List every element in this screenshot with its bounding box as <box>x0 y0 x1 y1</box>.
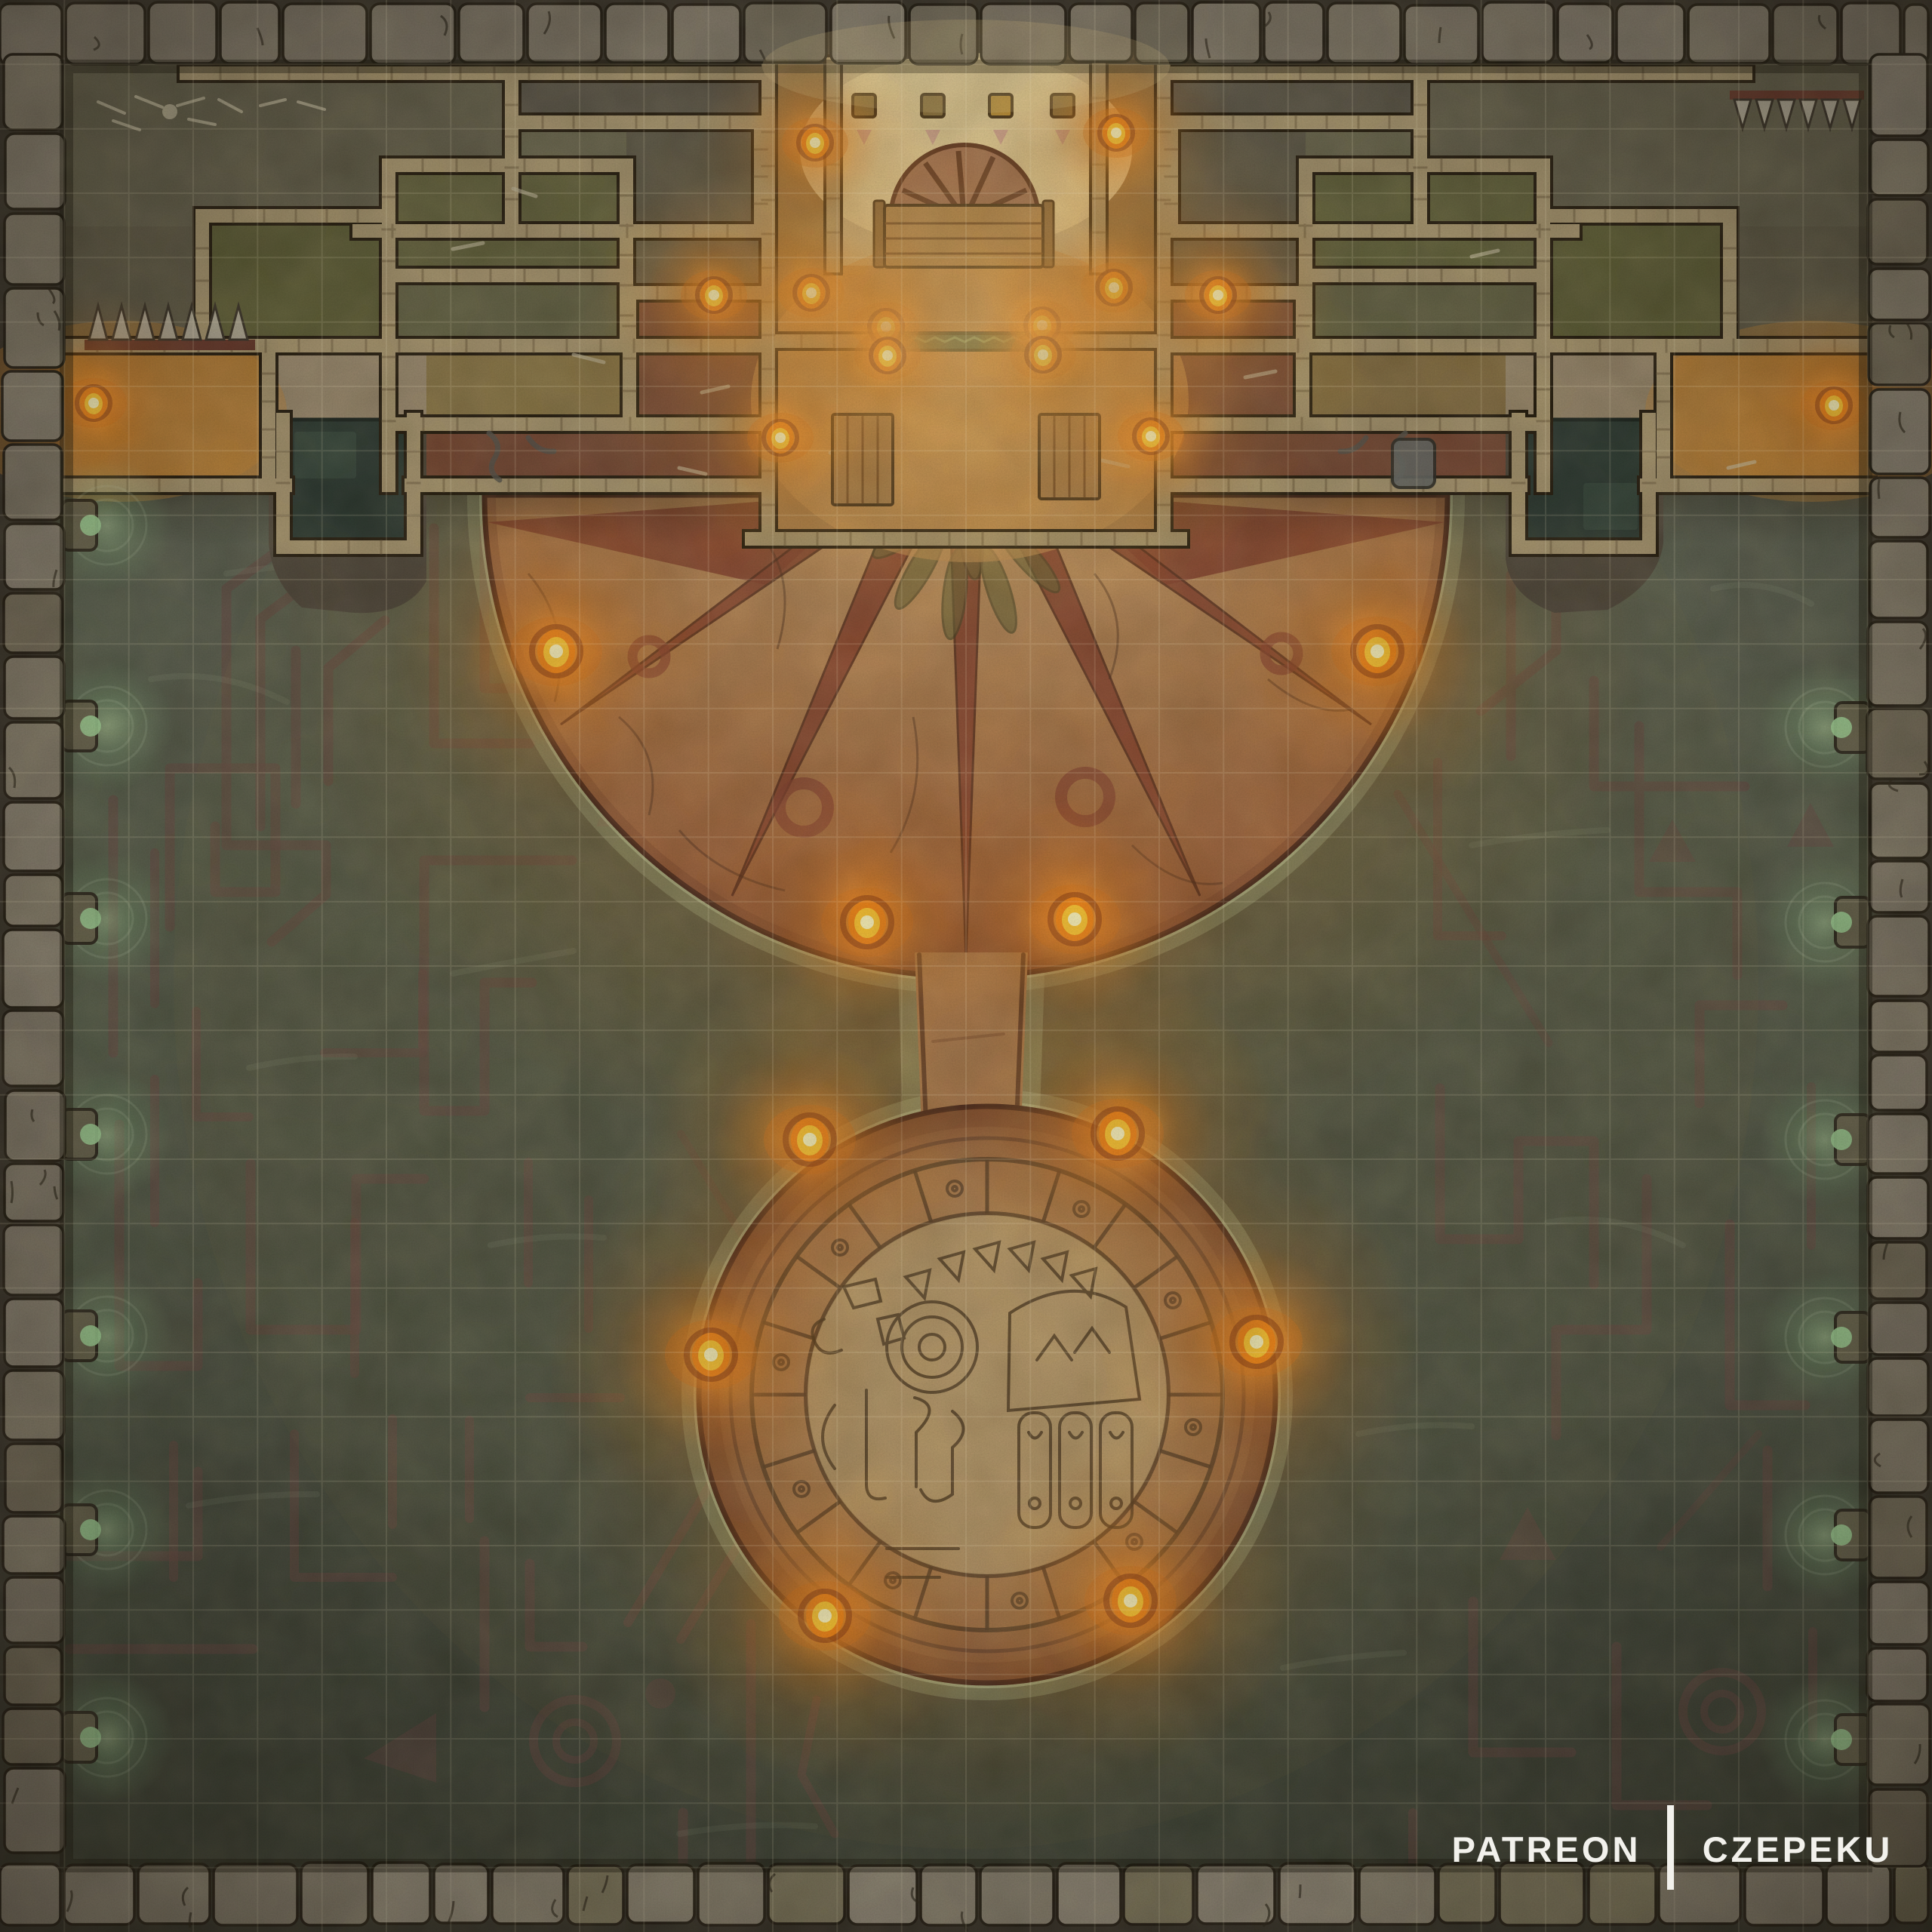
svg-text:PATREON: PATREON <box>1452 1829 1641 1869</box>
svg-text:CZEPEKU: CZEPEKU <box>1703 1829 1894 1869</box>
